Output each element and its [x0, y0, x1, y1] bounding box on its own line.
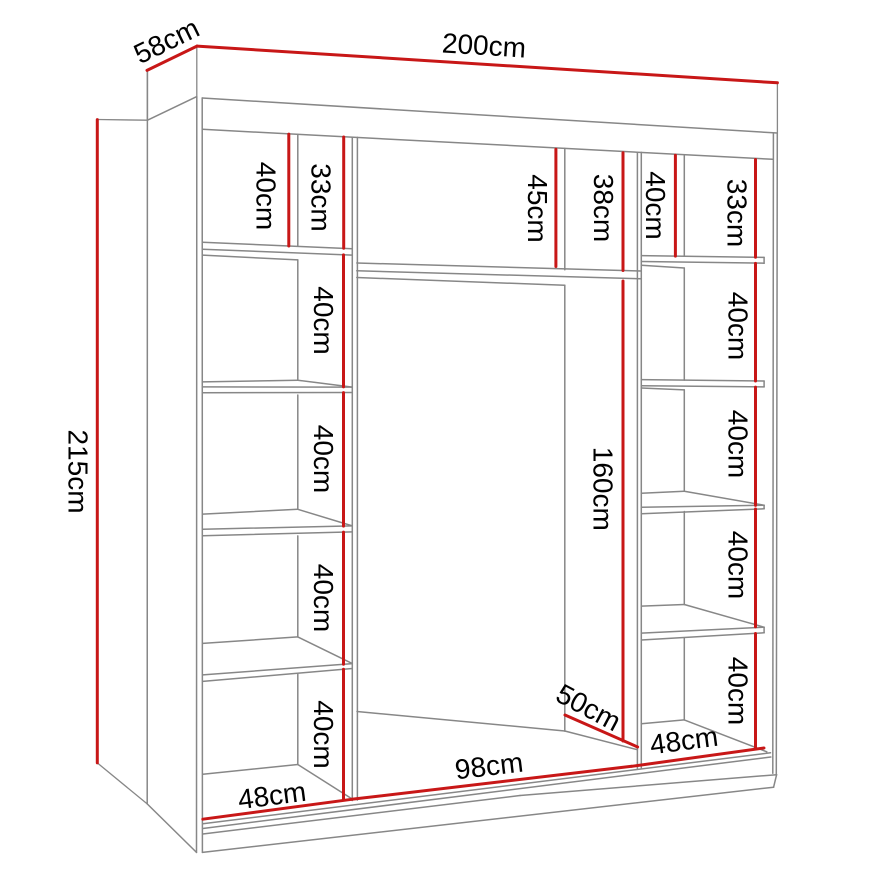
svg-text:40cm: 40cm	[308, 564, 339, 632]
svg-text:200cm: 200cm	[441, 27, 527, 63]
svg-text:160cm: 160cm	[588, 447, 619, 531]
svg-text:33cm: 33cm	[722, 179, 753, 247]
svg-text:48cm: 48cm	[236, 776, 308, 815]
svg-text:45cm: 45cm	[522, 174, 553, 242]
svg-text:40cm: 40cm	[723, 531, 754, 599]
svg-text:40cm: 40cm	[308, 286, 339, 354]
svg-text:40cm: 40cm	[723, 410, 754, 478]
svg-text:33cm: 33cm	[306, 163, 337, 231]
svg-text:40cm: 40cm	[308, 425, 339, 493]
svg-text:40cm: 40cm	[308, 700, 339, 768]
svg-text:40cm: 40cm	[640, 171, 671, 239]
svg-text:38cm: 38cm	[588, 174, 619, 242]
svg-text:40cm: 40cm	[723, 657, 754, 725]
svg-text:50cm: 50cm	[551, 678, 626, 738]
svg-text:215cm: 215cm	[63, 429, 94, 513]
svg-text:40cm: 40cm	[723, 292, 754, 360]
svg-text:40cm: 40cm	[251, 162, 282, 230]
